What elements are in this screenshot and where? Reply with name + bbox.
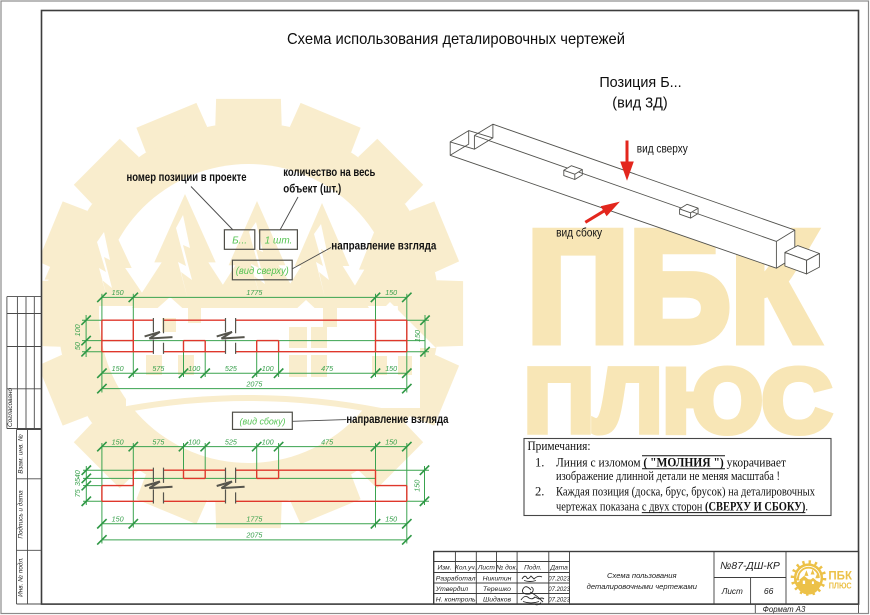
svg-text:Изм.: Изм. [437,565,451,572]
svg-text:(вид сверху): (вид сверху) [236,266,289,277]
svg-text:№ док.: № док. [496,564,517,572]
svg-text:вид сверху: вид сверху [637,143,688,155]
svg-text:1 шт.: 1 шт. [265,236,293,247]
svg-text:Примечания:: Примечания: [528,439,591,453]
svg-text:Взам. инв. №: Взам. инв. № [17,434,24,474]
svg-text:66: 66 [764,586,774,596]
svg-text:деталировочными чертежами: деталировочными чертежами [587,582,698,591]
svg-text:100: 100 [188,364,200,373]
svg-text:1775: 1775 [246,515,263,524]
svg-text:2.: 2. [535,484,544,498]
svg-text:Никитин: Никитин [483,576,512,583]
svg-text:Шидаков: Шидаков [483,596,512,604]
svg-text:Утвердил: Утвердил [435,585,469,593]
svg-text:475: 475 [321,364,334,373]
svg-text:150: 150 [385,515,397,524]
svg-text:количество на весь: количество на весь [283,167,375,179]
svg-text:Терешко: Терешко [483,586,511,593]
svg-text:Формат А3: Формат А3 [763,605,806,614]
svg-text:Согласовано: Согласовано [7,388,14,427]
svg-text:150: 150 [413,480,422,492]
svg-text:150: 150 [385,364,397,373]
svg-text:(вид сбоку): (вид сбоку) [240,417,286,428]
svg-text:475: 475 [321,437,334,446]
svg-text:Каждая позиция (доска, брус, б: Каждая позиция (доска, брус, брусок) на … [556,484,816,498]
svg-text:направление взгляда: направление взгляда [331,241,437,253]
svg-text:вид сбоку: вид сбоку [556,228,602,240]
svg-text:1.: 1. [535,456,544,470]
svg-text:150: 150 [413,330,422,342]
svg-text:50: 50 [73,342,82,350]
svg-text:100: 100 [188,437,200,446]
svg-text:150: 150 [112,364,124,373]
svg-text:150: 150 [112,288,124,297]
svg-text:(вид 3Д): (вид 3Д) [612,95,667,111]
svg-text:ПЛЮС: ПЛЮС [829,582,852,591]
svg-text:Разработал: Разработал [436,575,476,583]
svg-text:Дата: Дата [549,565,568,572]
svg-text:35: 35 [73,477,82,486]
svg-text:1775: 1775 [246,288,263,297]
svg-text:150: 150 [385,288,397,297]
svg-text:2075: 2075 [245,379,263,388]
svg-text:ПЛЮС: ПЛЮС [524,351,832,452]
svg-text:Б...: Б... [232,236,247,247]
svg-text:100: 100 [262,437,274,446]
svg-text:575: 575 [152,437,165,446]
svg-text:Схема использования деталирово: Схема использования деталировочных черте… [287,31,625,48]
svg-text:номер позиции в проекте: номер позиции в проекте [127,172,247,184]
svg-text:525: 525 [225,364,238,373]
svg-text:Кол.уч.: Кол.уч. [455,565,477,572]
svg-text:Позиция Б...: Позиция Б... [599,75,681,91]
svg-text:07.2023: 07.2023 [548,577,570,583]
svg-text:Схема пользования: Схема пользования [607,571,677,580]
svg-text:направление взгляда: направление взгляда [346,414,448,426]
svg-text:07.2023: 07.2023 [548,587,570,593]
svg-text:Инв. № подл.: Инв. № подл. [16,557,24,597]
svg-text:Линия с изломом ( "МОЛНИЯ ") у: Линия с изломом ( "МОЛНИЯ ") укорачивает [556,456,786,470]
svg-text:изображение длинной детали не: изображение длинной детали не меняя масш… [556,469,780,483]
svg-text:100: 100 [262,364,274,373]
svg-text:150: 150 [112,515,124,524]
svg-text:Подпись и дата: Подпись и дата [16,490,24,539]
svg-text:объект (шт.): объект (шт.) [283,183,341,195]
svg-text:40: 40 [73,470,82,478]
svg-text:100: 100 [73,324,82,336]
svg-text:Н. контроль: Н. контроль [436,597,476,604]
svg-text:07.2023: 07.2023 [548,598,570,604]
svg-text:150: 150 [385,437,397,446]
svg-text:Лист: Лист [477,565,495,572]
svg-text:575: 575 [152,364,165,373]
svg-text:Лист: Лист [721,587,743,596]
svg-text:75: 75 [73,488,82,497]
svg-text:525: 525 [225,437,238,446]
svg-text:№87-ДШ-КР: №87-ДШ-КР [720,561,780,572]
svg-text:150: 150 [112,437,124,446]
svg-text:Подп.: Подп. [524,564,542,572]
svg-text:чертежах показана с двух сторо: чертежах показана с двух сторон (СВЕРХУ … [556,499,808,513]
svg-text:2075: 2075 [245,531,263,540]
